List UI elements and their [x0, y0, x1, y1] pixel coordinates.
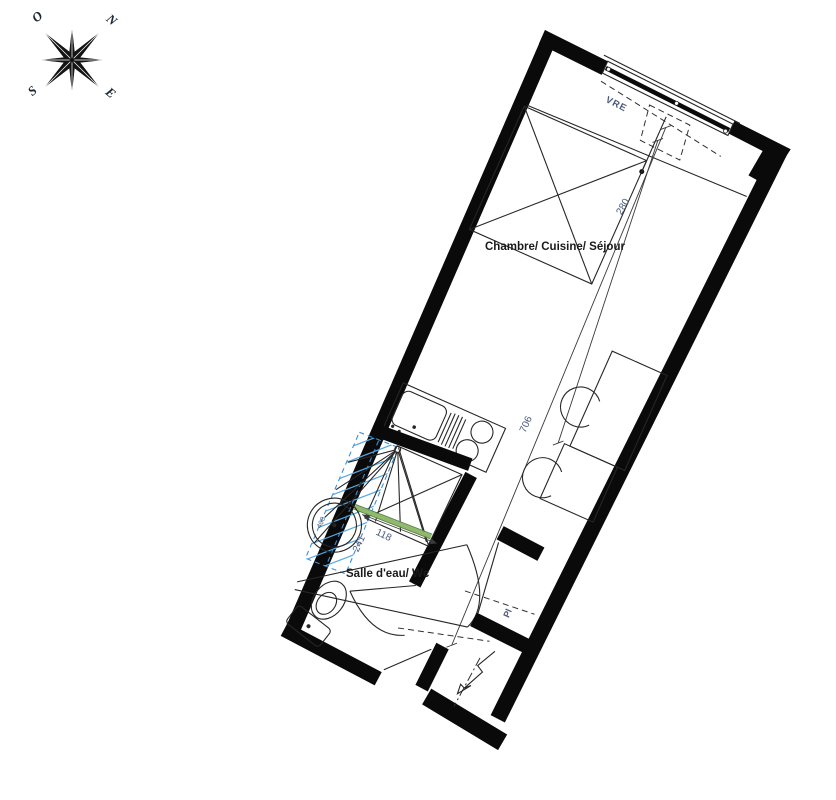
bathroom-label: Salle d'eau/ Wc [346, 568, 430, 580]
sink-drain-dot [412, 425, 417, 430]
wc-door-arc [340, 591, 412, 640]
entry-section-dashdot [454, 656, 480, 708]
wall-vestibule-bottom [418, 688, 512, 751]
wall-closet-bottom [469, 612, 537, 655]
compass-east-label: E [102, 83, 119, 101]
window-glazing [603, 68, 732, 130]
main-room-label: Chambre/ Cuisine/ Séjour [485, 241, 625, 253]
exterior-walls [270, 30, 795, 760]
wall-right [490, 133, 789, 733]
dim-tick [446, 640, 457, 651]
floorplan-rotated: VRE 706 280 [253, 22, 795, 760]
floorplan-drawing: O N S E [0, 0, 836, 800]
entry-arrow [457, 644, 495, 701]
compass-west-label: O [29, 7, 46, 25]
basin-dim-label: 400 [316, 516, 327, 530]
window-vre: VRE [566, 55, 743, 202]
compass-rose: O N S E [25, 7, 121, 101]
window-label: VRE [604, 94, 629, 114]
floorplan-page: O N S E [0, 0, 836, 800]
swing-arc [436, 545, 500, 628]
sink-drainer-lines [438, 412, 466, 450]
closet-label: Pl [501, 607, 514, 619]
compass-south-label: S [25, 82, 40, 98]
dim-tick [553, 438, 564, 449]
dim-706-label: 706 [518, 414, 535, 434]
wall-entry-stub [415, 642, 449, 692]
toilet-button [306, 623, 312, 629]
bed-diagonal-2 [469, 106, 646, 284]
wall-bottom-left [278, 622, 385, 686]
wall-closet-top-stub [495, 526, 545, 562]
compass-center [70, 58, 75, 63]
compass-north-label: N [103, 10, 121, 29]
closet-side-line [469, 542, 508, 613]
